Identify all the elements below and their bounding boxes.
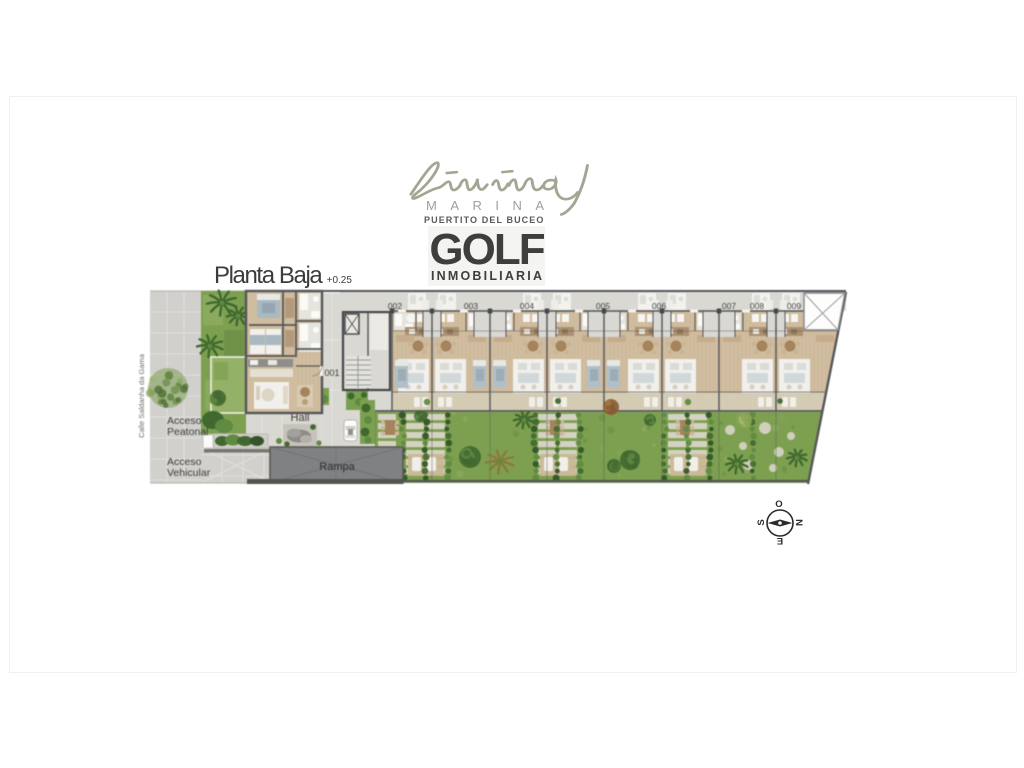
svg-text:E: E xyxy=(777,535,783,546)
svg-text:001: 001 xyxy=(324,368,339,378)
svg-text:009: 009 xyxy=(787,301,801,311)
svg-text:O: O xyxy=(775,499,782,510)
svg-text:Rampa: Rampa xyxy=(319,461,355,473)
svg-text:004: 004 xyxy=(520,301,534,311)
svg-text:007: 007 xyxy=(722,301,736,311)
svg-text:N: N xyxy=(793,519,804,526)
svg-text:Peatonal: Peatonal xyxy=(167,426,208,438)
svg-text:S: S xyxy=(756,519,767,525)
svg-text:003: 003 xyxy=(464,301,478,311)
svg-text:002: 002 xyxy=(388,301,402,311)
svg-text:008: 008 xyxy=(750,301,764,311)
svg-text:Calle Saldanha da Gama: Calle Saldanha da Gama xyxy=(137,353,146,438)
svg-text:005: 005 xyxy=(596,301,610,311)
svg-text:Vehicular: Vehicular xyxy=(167,467,211,479)
svg-text:006: 006 xyxy=(652,301,666,311)
